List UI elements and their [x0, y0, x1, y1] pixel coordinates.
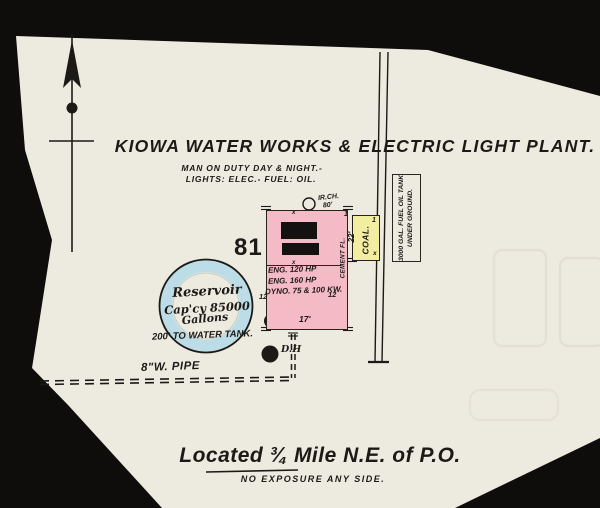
floor-material-label: CEMENT FL. [341, 238, 348, 279]
wall-height-left: 12 [259, 293, 267, 301]
coal-shed-stories-mark: 1 [372, 217, 376, 224]
opening-mark-top: x [292, 210, 295, 216]
coal-shed-corner-mark: x [373, 251, 377, 258]
boiler-block-1 [281, 222, 317, 239]
drill-hole-label: D.H [281, 345, 301, 355]
opening-mark-mid: x [292, 260, 295, 266]
fuel-tank-note: 3000 GAL. FUEL OIL TANK UNDER GROUND. [397, 175, 415, 261]
block-number: 81 [234, 235, 263, 260]
location-note: Located ¾ Mile N.E. of P.O. [179, 445, 461, 467]
building-stories-mark: 1 [344, 211, 348, 218]
map-subtitle-2: LIGHTS: ELEC.- FUEL: OIL. [186, 175, 317, 184]
fuel-tank-note-line1: 3000 GAL. FUEL OIL TANK [397, 175, 406, 261]
water-pipe-label: 8"W. PIPE [141, 360, 200, 374]
boiler-block-2 [282, 243, 319, 255]
chimney-height-label: 80' [323, 202, 333, 210]
sanborn-map-sheet: 3000 GAL. FUEL OIL TANK UNDER GROUND. KI… [0, 0, 600, 508]
front-width-label: 17' [299, 315, 310, 324]
fuel-tank-note-line2: UNDER GROUND. [406, 175, 415, 261]
map-title: KIOWA WATER WORKS & ELECTRIC LIGHT PLANT… [115, 137, 596, 155]
engine2-label: ENG. 160 HP [268, 276, 317, 286]
map-subtitle-1: MAN ON DUTY DAY & NIGHT.- [181, 164, 322, 173]
wall-height-right: 12 [328, 291, 336, 299]
coal-shed-label: COAL. [362, 226, 371, 255]
exposure-note: NO EXPOSURE ANY SIDE. [241, 475, 386, 484]
engine1-label: ENG. 120 HP [268, 265, 317, 275]
depth-label: 22' [348, 232, 356, 243]
